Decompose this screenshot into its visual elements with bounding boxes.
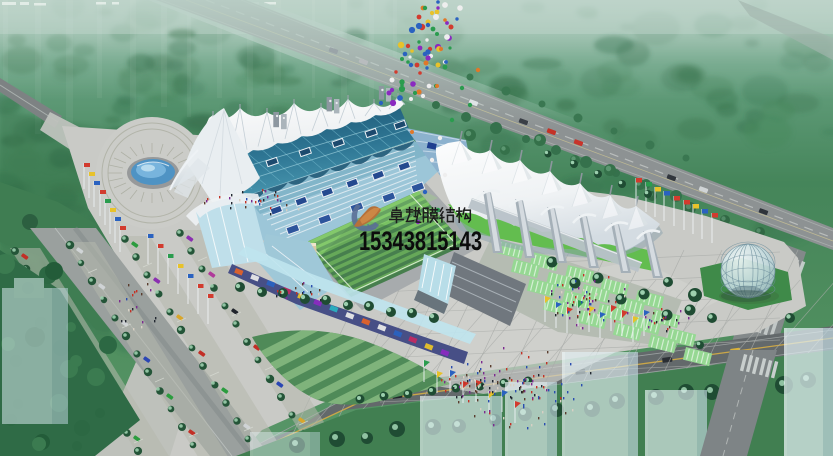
svg-text:15343815143: 15343815143 [359,226,482,256]
